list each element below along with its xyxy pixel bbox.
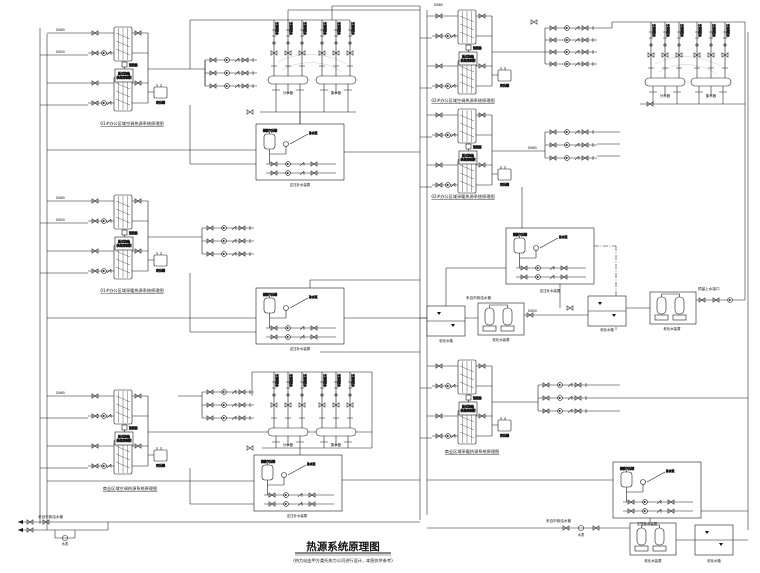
softener-unit xyxy=(650,292,696,324)
makeup-water-unit xyxy=(256,124,344,180)
pipe-tag: DN50 xyxy=(56,50,65,54)
drawing-title-note: (热力站由甲方委托热力公司进行设计，本图仅供参考) xyxy=(293,557,393,564)
caption-right-mid: 02#办公区域采暖热源系统原理图 xyxy=(431,193,494,200)
pipe-tag: DN50 xyxy=(56,218,65,222)
heat-exchanger-unit xyxy=(432,360,522,444)
makeup-unit-label: 定压补水装置 xyxy=(290,182,311,187)
makeup-water-unit xyxy=(256,288,344,344)
pipe-tag: DN65 xyxy=(56,391,65,395)
title-block: 热源系统原理图 (热力站由甲方委托热力公司进行设计，本图仅供参考) xyxy=(293,540,393,564)
softener-unit xyxy=(630,523,676,555)
pipe-tag: DN65 xyxy=(56,196,65,200)
pipe-tag: DN80 xyxy=(434,3,443,7)
soft-water-tank-label: 软化水箱 xyxy=(707,558,721,563)
softener-label: 软化水装置 xyxy=(645,558,663,563)
softener-label: 软化水装置 xyxy=(664,326,682,331)
drawing-title: 热源系统原理图 xyxy=(306,540,380,553)
pipe-tag: DN50 xyxy=(528,309,537,313)
caption-left-top: 01#办公区域空调热源系统原理图 xyxy=(100,120,163,127)
heat-exchanger-unit xyxy=(88,27,178,111)
manifold-supply-label: 分水器 xyxy=(660,93,671,98)
softener-label: 软化水装置 xyxy=(493,337,511,342)
manifold-return xyxy=(316,20,356,93)
pipe-tag: DN65 xyxy=(528,146,537,150)
branch-cluster xyxy=(545,130,597,161)
manifold-return-label: 集水器 xyxy=(706,93,717,98)
branch-cluster xyxy=(202,226,254,257)
manifold-supply xyxy=(268,372,308,445)
softener-unit xyxy=(478,303,524,335)
makeup-unit-label: 定压补水装置 xyxy=(637,521,658,526)
manifold-supply-label: 分水器 xyxy=(283,442,294,447)
makeup-unit-label: 定压补水装置 xyxy=(290,346,311,351)
manifold-supply-label: 分水器 xyxy=(283,90,294,95)
caption-right-top: 02#办公区域空调热源系统原理图 xyxy=(431,97,494,104)
water-meter-label: 水表 xyxy=(62,541,69,546)
soft-water-tank xyxy=(695,525,733,555)
water-meter-label: 水表 xyxy=(578,532,585,537)
heat-exchanger-unit xyxy=(432,109,522,193)
branch-cluster xyxy=(545,26,597,67)
soft-water-tank-label: 软化水箱 xyxy=(600,327,614,332)
makeup-water-unit xyxy=(506,228,594,284)
manifold-return-label: 集水器 xyxy=(331,442,342,447)
caption-right-bottom: 商业区域采暖热源系统原理图 xyxy=(445,448,499,455)
heat-source-schematic: 温控器 板式换热 机组控制柜 定压罐 空调供回水 空调供回水 空调供回水 xyxy=(0,0,760,573)
heat-exchanger-unit xyxy=(88,195,178,279)
reserved-riser-note: 预留上水接口 xyxy=(698,286,720,291)
makeup-water-unit xyxy=(254,455,342,511)
soft-water-tank xyxy=(427,306,465,336)
soft-water-tank xyxy=(588,296,626,326)
branch-cluster xyxy=(205,58,257,89)
caption-left-bottom: 商业区域空调热源系统原理图 xyxy=(103,485,157,492)
manifold-return xyxy=(691,22,731,95)
makeup-unit-label: 定压补水装置 xyxy=(287,513,308,518)
heat-exchanger-unit xyxy=(88,390,178,474)
city-water-note: 来自市政给水管 xyxy=(38,514,64,519)
manifold-return-label: 集水器 xyxy=(331,90,342,95)
makeup-water-unit xyxy=(613,462,701,518)
branch-cluster xyxy=(202,390,254,421)
makeup-unit-label: 定压补水装置 xyxy=(540,288,561,293)
soft-water-tank-label: 软化水箱 xyxy=(439,338,453,343)
heat-exchanger-unit xyxy=(432,10,522,94)
caption-left-mid: 01#办公区域采暖热源系统原理图 xyxy=(100,287,163,294)
city-water-note: 来自市政给水管 xyxy=(466,295,492,300)
manifold-supply xyxy=(645,22,685,95)
manifold-supply xyxy=(268,20,308,93)
drawing-sheet: 温控器 板式换热 机组控制柜 定压罐 空调供回水 空调供回水 空调供回水 xyxy=(0,0,760,573)
pipe-tag: DN65 xyxy=(56,28,65,32)
city-water-note: 来自市政给水管 xyxy=(546,518,572,523)
branch-cluster xyxy=(538,383,590,414)
manifold-return xyxy=(316,372,356,445)
